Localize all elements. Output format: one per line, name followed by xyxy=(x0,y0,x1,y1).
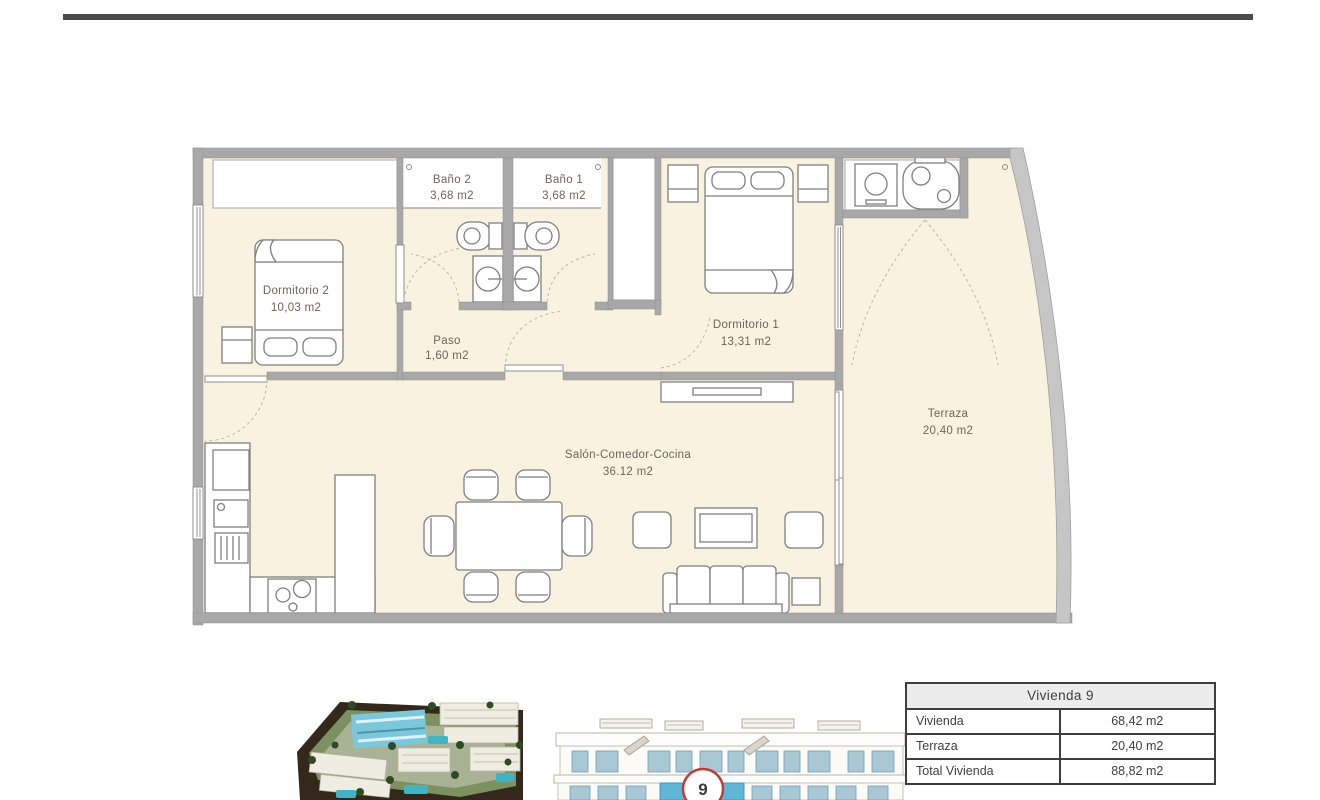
wardrobe-strip xyxy=(213,160,397,208)
kitchen-island xyxy=(335,475,375,613)
row-value: 20,40 m2 xyxy=(1061,735,1215,758)
label-terraza-name: Terraza xyxy=(928,408,969,420)
highlighted-building xyxy=(351,709,427,748)
summary-table-header: Vivienda 9 xyxy=(907,684,1214,710)
toilet xyxy=(457,222,502,250)
row-value: 68,42 m2 xyxy=(1061,710,1215,733)
side-table xyxy=(633,512,671,548)
label-dormitorio2-name: Dormitorio 2 xyxy=(263,285,329,297)
page: Baño 2 3,68 m2 Baño 1 3,68 m2 Dormitorio… xyxy=(0,0,1320,800)
label-bano1-area: 3,68 m2 xyxy=(542,190,586,202)
summary-table: Vivienda 9 Vivienda 68,42 m2 Terraza 20,… xyxy=(905,682,1216,785)
label-paso-area: 1,60 m2 xyxy=(425,350,469,362)
tv xyxy=(693,388,761,395)
washing-machine xyxy=(855,164,897,206)
fridge xyxy=(213,450,249,490)
small-table xyxy=(792,578,820,605)
label-dormitorio1-name: Dormitorio 1 xyxy=(713,319,779,331)
toilet xyxy=(514,222,559,250)
unit-number-badge: 9 xyxy=(683,769,723,800)
label-bano1-name: Baño 1 xyxy=(545,174,583,186)
label-terraza-area: 20,40 m2 xyxy=(923,425,973,437)
label-dormitorio2-area: 10,03 m2 xyxy=(271,302,321,314)
table-row: Terraza 20,40 m2 xyxy=(907,733,1214,758)
water-heater xyxy=(903,157,959,209)
label-paso-name: Paso xyxy=(433,335,460,347)
row-label: Terraza xyxy=(907,735,1061,758)
row-value: 88,82 m2 xyxy=(1061,760,1215,783)
hall-closet xyxy=(613,158,655,300)
window-bedroom2 xyxy=(193,205,203,297)
label-salon-area: 36.12 m2 xyxy=(603,466,653,478)
table-row: Vivienda 68,42 m2 xyxy=(907,710,1214,733)
label-bano2-area: 3,68 m2 xyxy=(430,190,474,202)
window-kitchen xyxy=(193,487,203,539)
row-label: Total Vivienda xyxy=(907,760,1061,783)
table-row: Total Vivienda 88,82 m2 xyxy=(907,758,1214,783)
sink xyxy=(473,256,503,302)
nightstand xyxy=(222,327,252,363)
label-salon-name: Salón-Comedor-Cocina xyxy=(565,449,691,461)
dining-table xyxy=(456,502,562,570)
side-table xyxy=(785,512,823,548)
window-bedroom1-terrace xyxy=(835,225,843,330)
building-elevation: 9 xyxy=(554,719,907,800)
aerial-site-render xyxy=(297,701,524,800)
sink xyxy=(513,256,541,302)
sofa xyxy=(663,566,789,613)
label-dormitorio1-area: 13,31 m2 xyxy=(721,336,771,348)
dishwasher xyxy=(215,533,248,563)
row-label: Vivienda xyxy=(907,710,1061,733)
floor-plan: Baño 2 3,68 m2 Baño 1 3,68 m2 Dormitorio… xyxy=(0,0,1320,800)
nightstand xyxy=(798,165,828,202)
unit-number: 9 xyxy=(698,780,707,799)
nightstand xyxy=(668,165,698,202)
label-bano2-name: Baño 2 xyxy=(433,174,471,186)
